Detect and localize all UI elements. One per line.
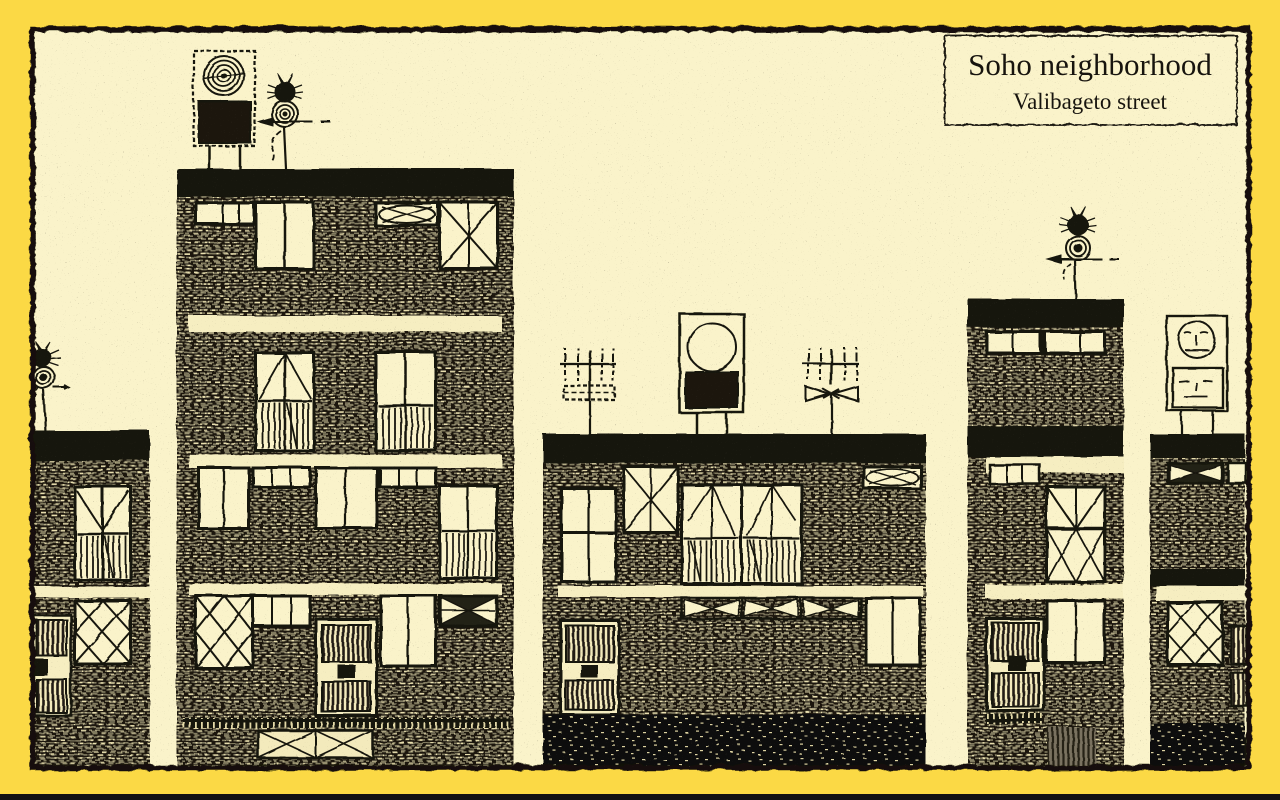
svg-text:Valibageto street: Valibageto street <box>1013 89 1168 114</box>
svg-text:Soho neighborhood: Soho neighborhood <box>968 47 1212 82</box>
